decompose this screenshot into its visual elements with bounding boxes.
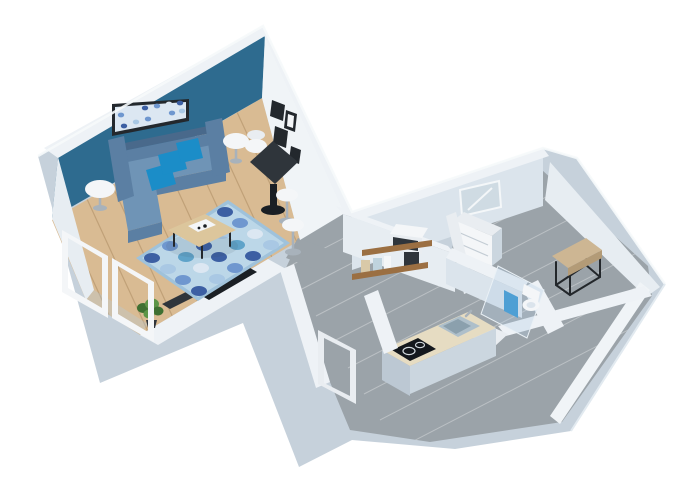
rug-circle: [227, 263, 243, 273]
jar: [373, 258, 382, 271]
rug-circle: [247, 229, 263, 239]
table-base: [230, 158, 242, 163]
chair-back: [247, 130, 265, 140]
table-base: [93, 205, 107, 211]
jar: [361, 260, 370, 273]
dining-table-column: [270, 184, 277, 208]
art-circle: [177, 101, 183, 106]
rug-circle: [160, 264, 176, 274]
stool-base: [285, 249, 301, 256]
table-top: [85, 180, 115, 198]
rug-circle: [245, 251, 261, 261]
art-circle: [130, 109, 136, 114]
table-deco: [203, 224, 207, 228]
art-circle: [154, 104, 160, 109]
rug-circle: [232, 218, 248, 228]
rug-circle: [144, 253, 160, 263]
rug-circle: [191, 286, 207, 296]
jar: [384, 256, 391, 269]
rug-circle: [175, 275, 191, 285]
picture-frame-inner: [287, 114, 294, 128]
art-circle: [166, 102, 172, 107]
stool-seat: [282, 219, 304, 232]
rug-circle: [209, 274, 225, 284]
art-circle: [133, 120, 139, 125]
rug-circle: [193, 263, 209, 273]
art-circle: [145, 117, 151, 122]
floor-plan-rendering: [0, 0, 700, 500]
rug-circle: [217, 207, 233, 217]
dining-table-base: [261, 205, 285, 215]
stool-seat: [276, 189, 298, 202]
table-deco: [198, 227, 201, 230]
rug-circle: [263, 240, 279, 250]
art-circle: [157, 114, 163, 119]
art-circle: [169, 111, 175, 116]
art-circle: [179, 109, 185, 114]
art-circle: [142, 106, 148, 111]
art-circle: [121, 124, 127, 129]
toilet-seat: [527, 302, 536, 308]
art-circle: [118, 113, 124, 118]
